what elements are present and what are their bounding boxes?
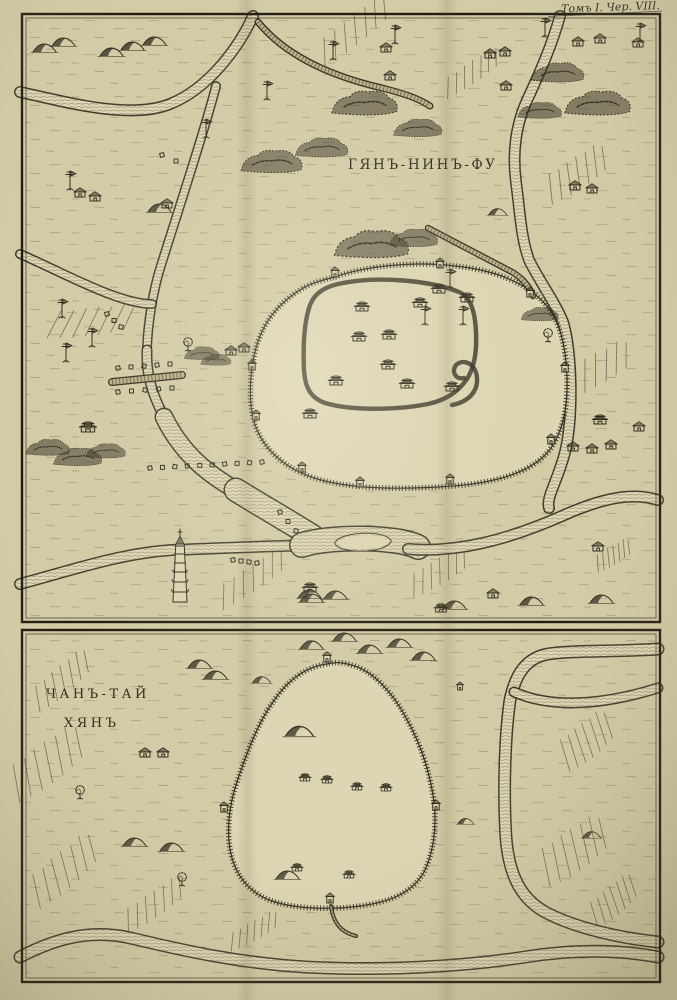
top-panel: ГЯНЪ-НИНЪ-ФУ: [20, 0, 660, 622]
bottom-panel: ЧАНЪ-ТАЙ ХЯНЪ: [0, 630, 660, 982]
bottom-map-title-line2: ХЯНЪ: [64, 716, 119, 731]
top-map-title: ГЯНЪ-НИНЪ-ФУ: [348, 157, 498, 173]
paper-fold-left: [236, 0, 258, 1000]
town-wall: [250, 264, 567, 488]
map-plate-svg: ГЯНЪ-НИНЪ-ФУ ЧАНЪ-ТАЙ ХЯНЪ Томъ I. Чер. …: [0, 0, 677, 1000]
scanned-map-page: ГЯНЪ-НИНЪ-ФУ ЧАНЪ-ТАЙ ХЯНЪ Томъ I. Чер. …: [0, 0, 677, 1000]
bottom-map-title-line1: ЧАНЪ-ТАЙ: [46, 685, 150, 702]
paper-fold-right: [436, 0, 458, 1000]
